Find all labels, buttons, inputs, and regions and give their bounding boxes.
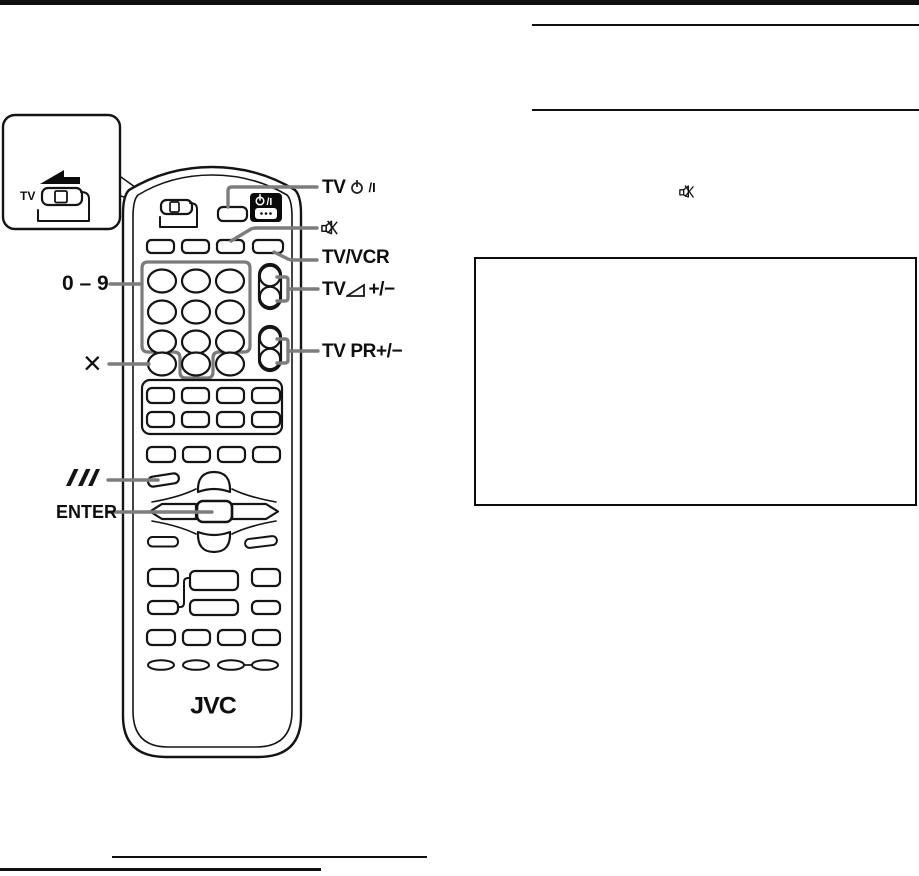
tv-volume-down (260, 287, 280, 307)
enter-label: ENTER (56, 503, 117, 521)
tv-volume-suffix: +/− (368, 280, 394, 299)
manual-page: /I (0, 0, 919, 876)
volume-triangle-icon (346, 283, 366, 298)
down-button (198, 532, 230, 552)
tv-volume-prefix: TV (322, 280, 345, 299)
cancel-label: × (83, 347, 102, 379)
flat-button (148, 537, 178, 547)
mute-speaker-x-icon (321, 218, 340, 237)
tv-pr-label: TV PR+/− (322, 342, 402, 361)
tv-vcr-button (253, 240, 283, 253)
right-button (232, 504, 278, 519)
inset-tv-label: TV (20, 189, 35, 203)
power-button-dots (260, 212, 272, 215)
tv-power-label: TV /I (322, 177, 376, 197)
cancel-button (148, 353, 176, 376)
power-button-suffix: /I (267, 196, 273, 208)
button (182, 240, 209, 253)
tv-power-prefix: TV (322, 178, 345, 197)
switch-knob (170, 202, 179, 212)
power-circle-bar-icon (349, 178, 366, 196)
tv-volume-label: TV +/− (322, 279, 395, 299)
digits-label: 0 – 9 (62, 273, 109, 294)
remote-illustration: /I (0, 0, 919, 876)
jvc-logo: JVC (188, 693, 238, 721)
up-button (198, 472, 230, 492)
tv-pr-down (260, 349, 280, 369)
triple-slash-icon (66, 469, 100, 486)
tv-power-button (218, 207, 247, 221)
tv-vcr-label: TV/VCR (322, 248, 389, 267)
button (147, 240, 174, 253)
inset-switch-knob (55, 191, 67, 203)
tv-power-suffix: /I (368, 181, 375, 194)
